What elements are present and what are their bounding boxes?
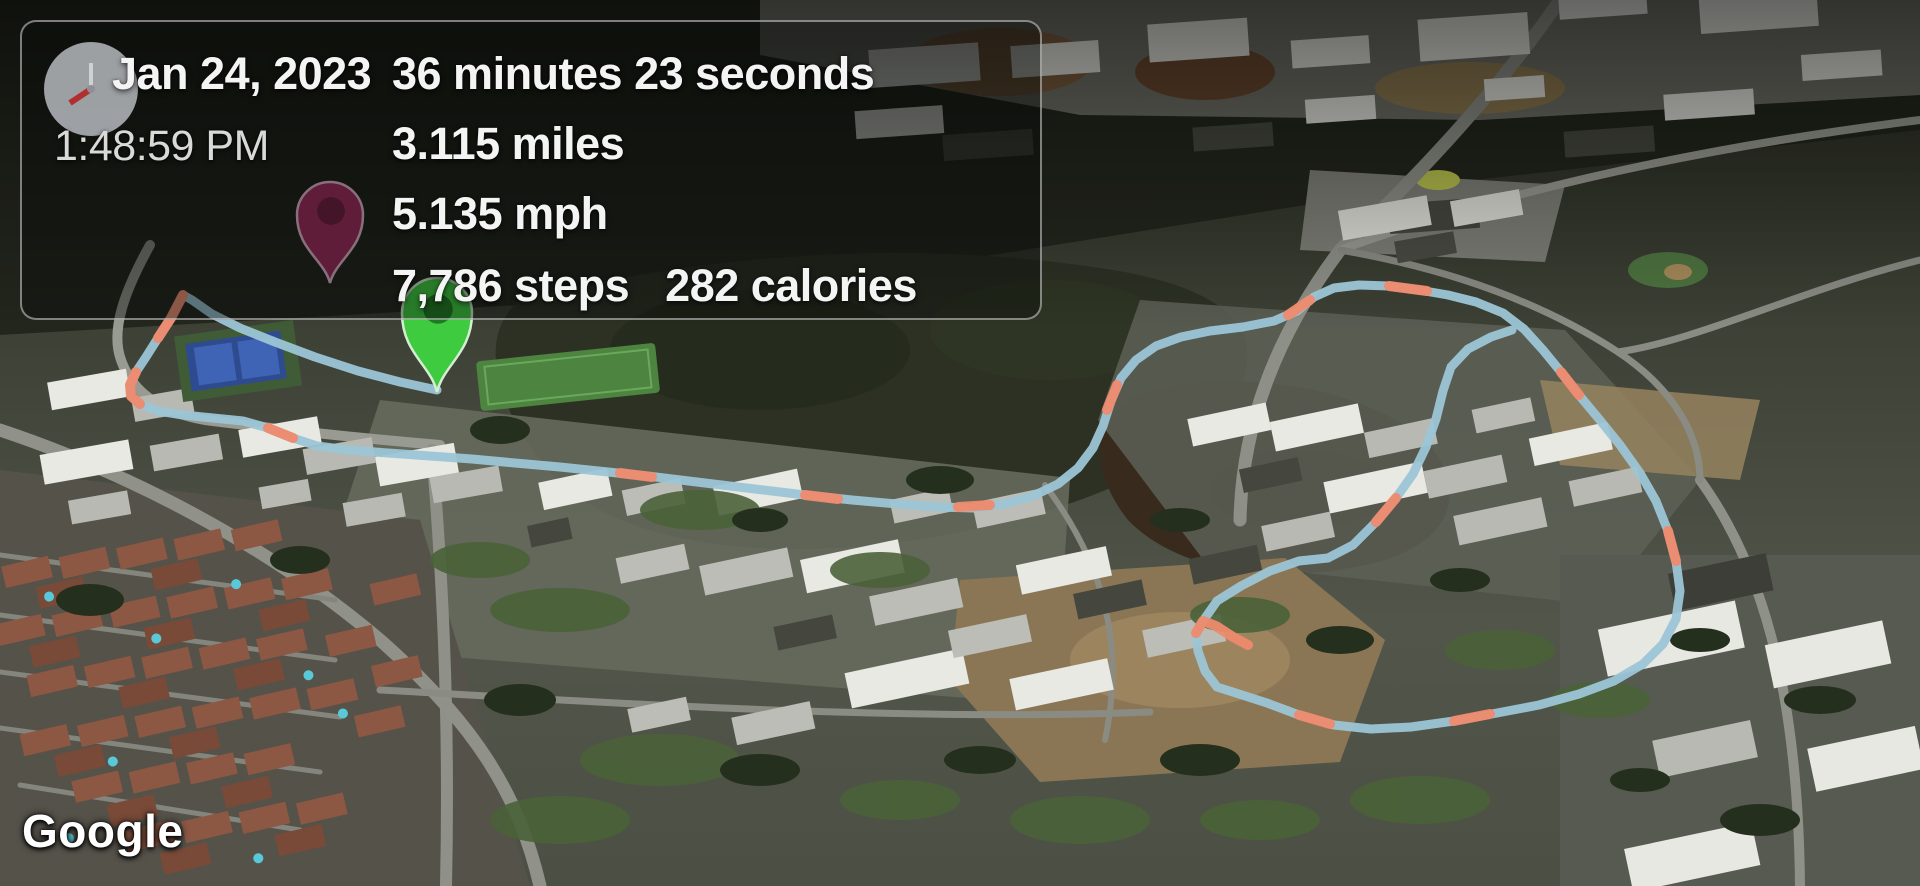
date-label: Jan 24, 2023 [112,46,371,102]
time-label: 1:48:59 PM [54,118,269,174]
calories-label: 282 calories [665,258,917,314]
speed-label: 5.135 mph [392,186,608,242]
screen: Jan 24, 2023 36 minutes 23 seconds 1:48:… [0,0,1920,886]
steps-calories-row: 7,786 steps 282 calories [392,258,917,314]
duration-label: 36 minutes 23 seconds [392,46,874,102]
google-logo: Google [22,804,183,858]
steps-label: 7,786 steps [392,258,629,314]
distance-label: 3.115 miles [392,116,624,172]
activity-summary-panel: Jan 24, 2023 36 minutes 23 seconds 1:48:… [20,20,1042,320]
